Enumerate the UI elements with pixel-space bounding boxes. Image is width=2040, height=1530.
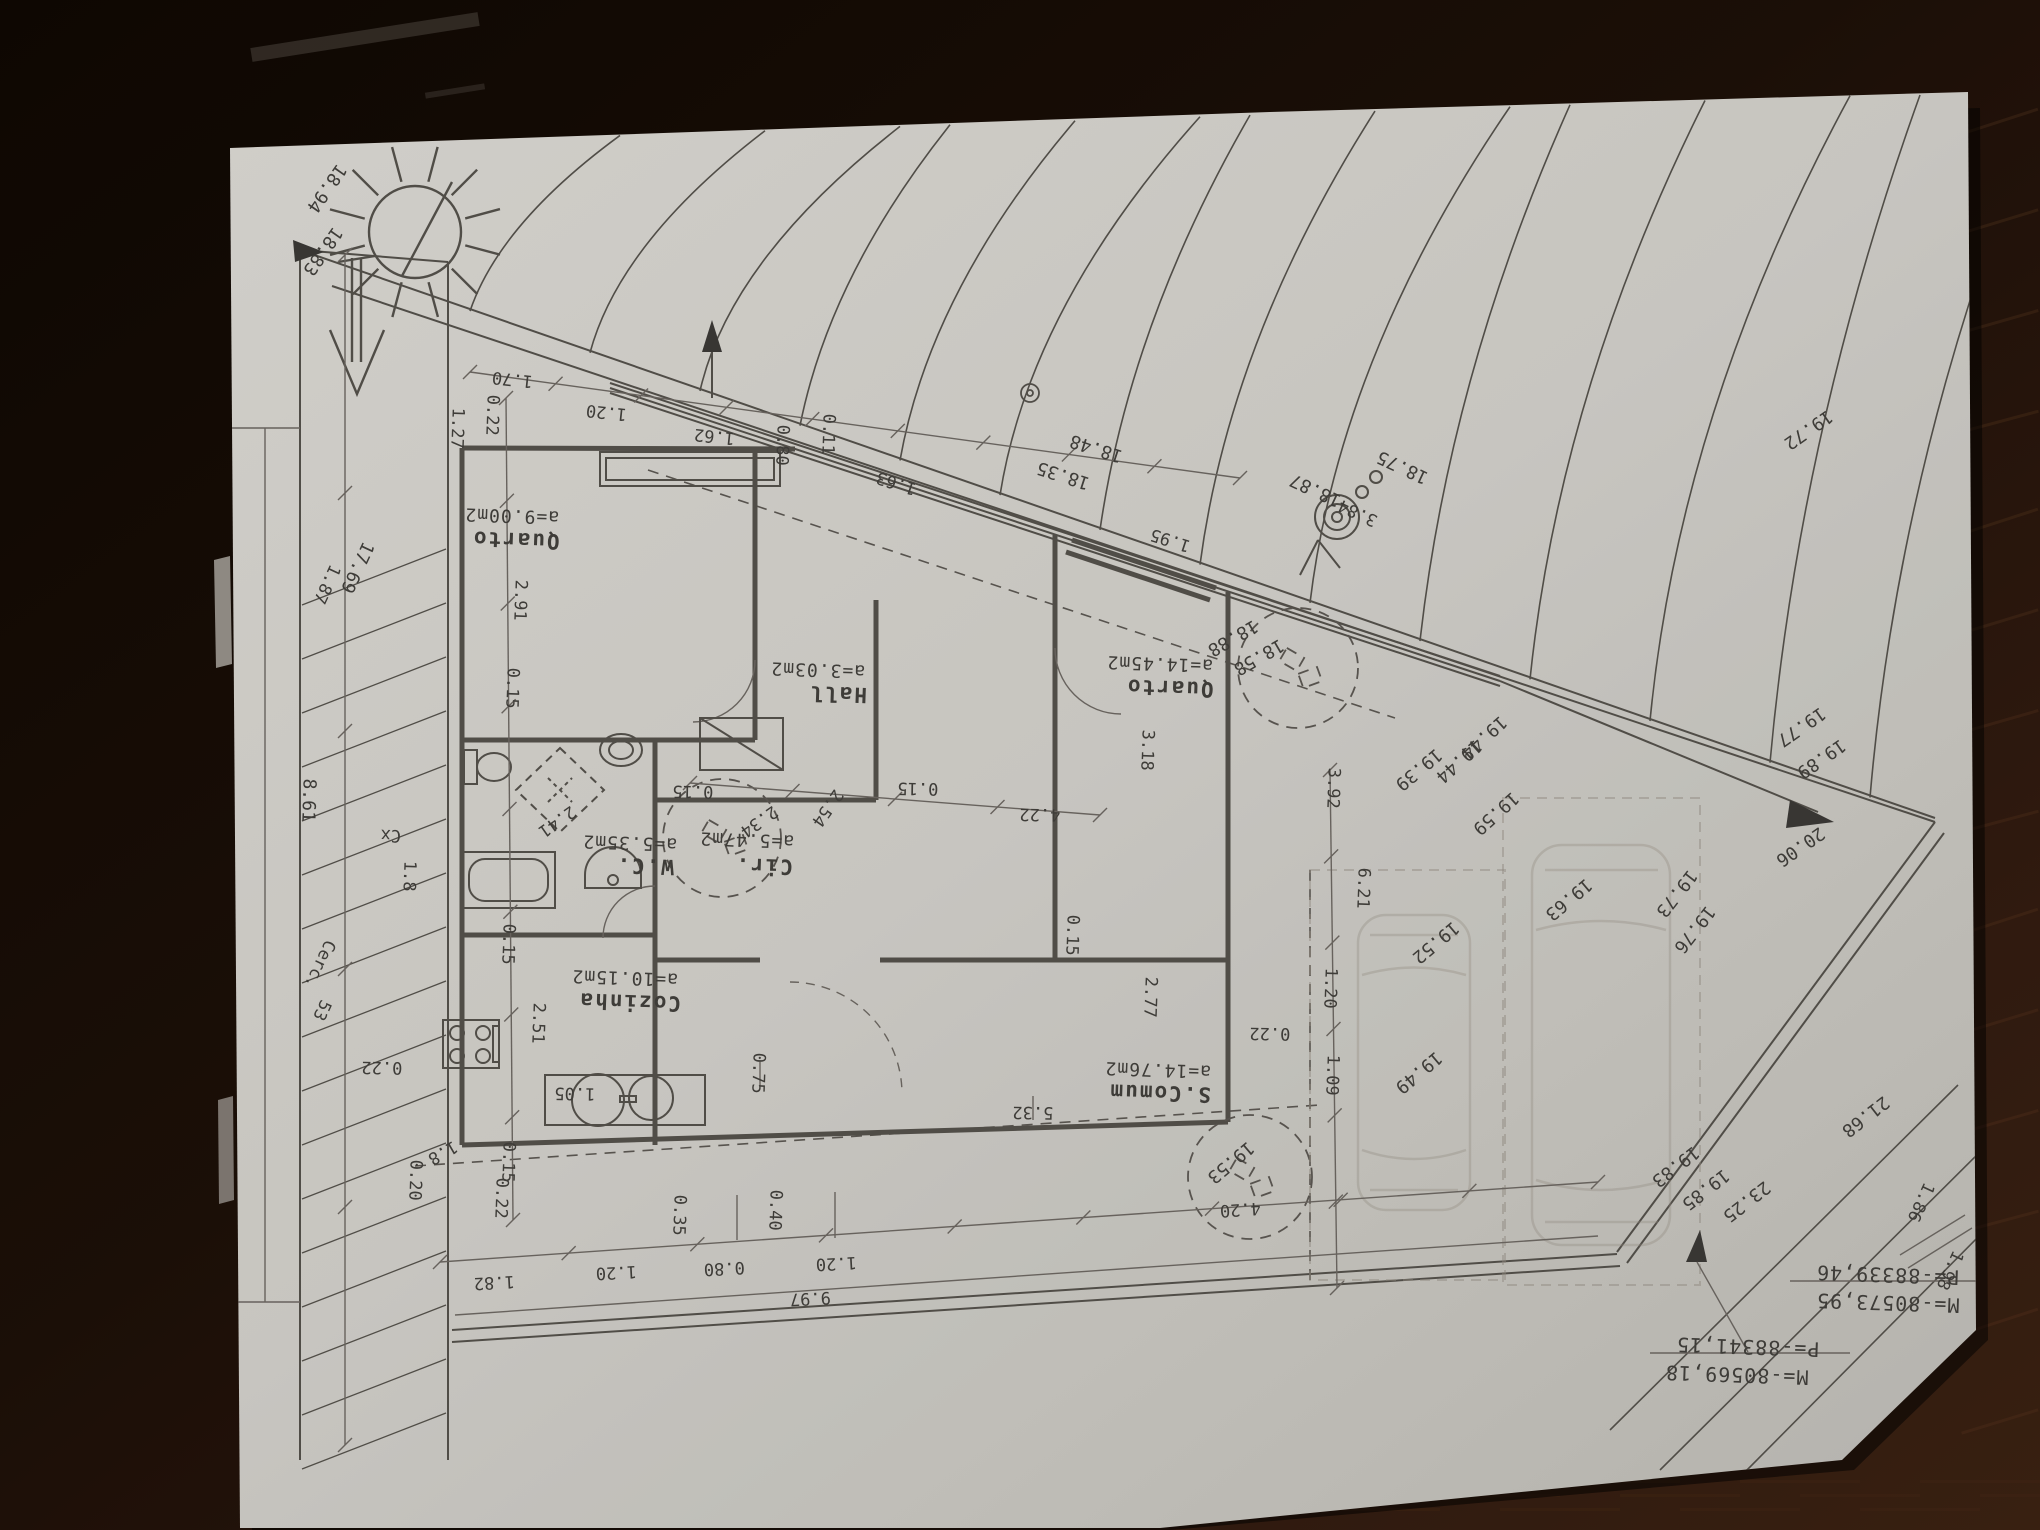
photo-vignette [0,0,2040,1530]
scene-svg: 0.221.701.201.620.800.111.631.951.2718.9… [0,0,2040,1530]
photo-of-floor-plan: 0.221.701.201.620.800.111.631.951.2718.9… [0,0,2040,1530]
